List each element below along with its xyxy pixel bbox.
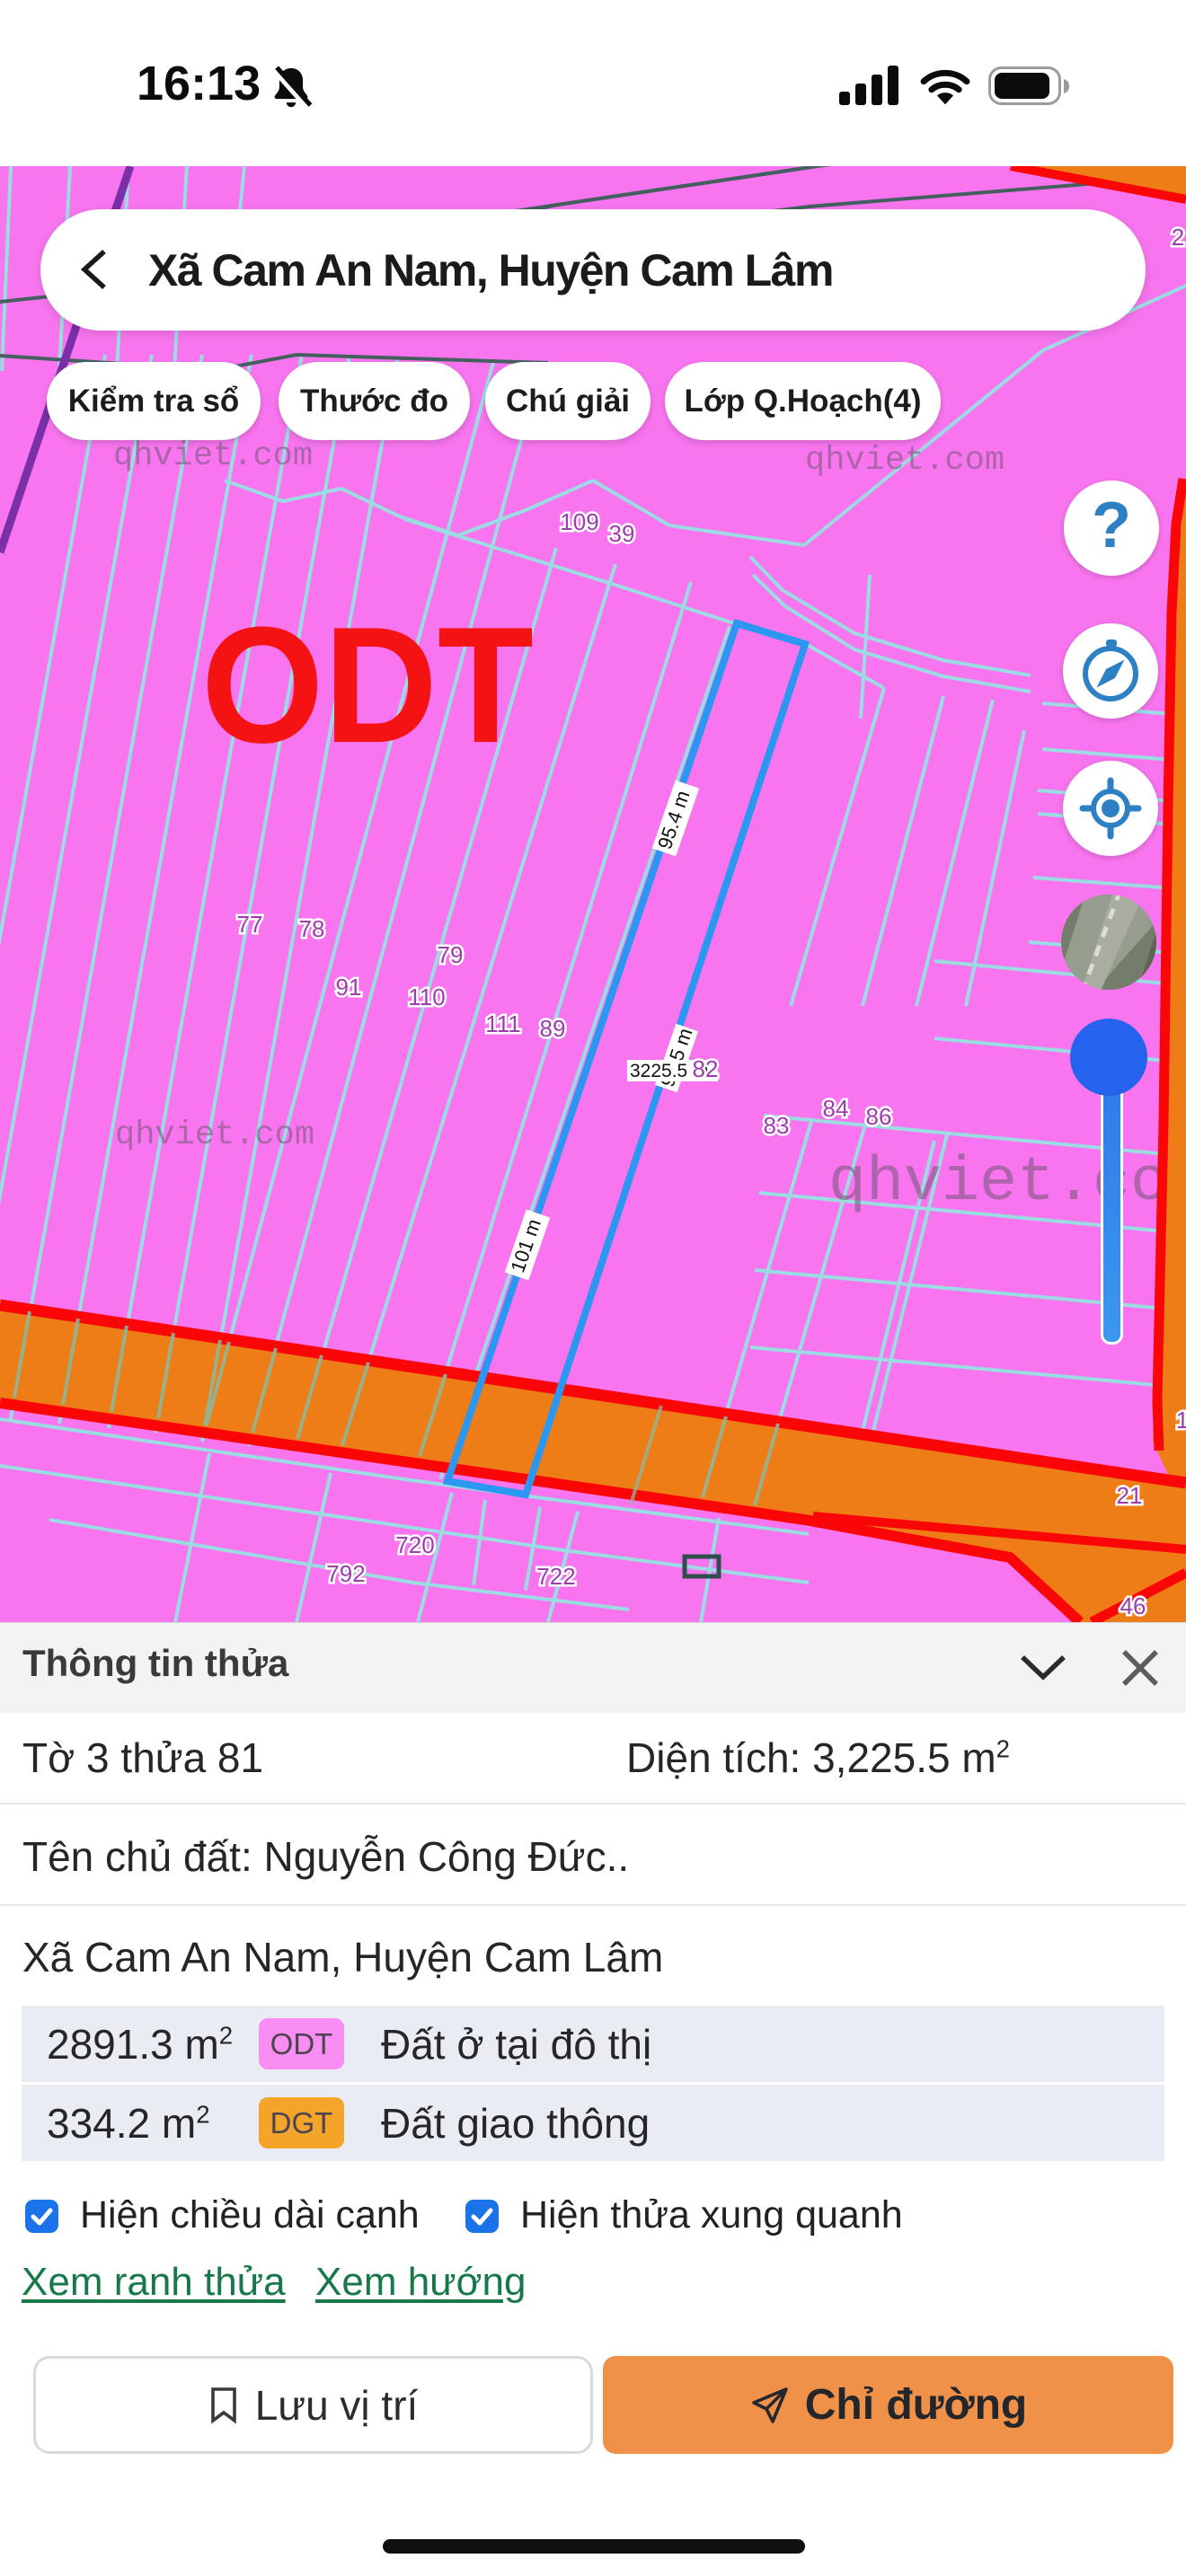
svg-text:21: 21 [1117, 1482, 1143, 1509]
svg-text:89: 89 [540, 1015, 566, 1042]
svg-text:111: 111 [485, 1010, 521, 1037]
svg-text:82: 82 [693, 1055, 719, 1082]
svg-text:78: 78 [299, 915, 325, 942]
svg-text:109: 109 [560, 508, 598, 535]
svg-text:qhviet.com: qhviet.com [113, 437, 313, 475]
svg-text:91: 91 [336, 974, 362, 1001]
svg-text:39: 39 [609, 520, 635, 547]
svg-text:qhviet.com: qhviet.com [115, 1116, 314, 1154]
svg-text:1: 1 [1176, 1407, 1186, 1434]
svg-text:83: 83 [764, 1112, 790, 1139]
svg-text:86: 86 [866, 1103, 892, 1130]
svg-text:84: 84 [823, 1095, 849, 1122]
svg-text:79: 79 [438, 941, 464, 968]
svg-text:77: 77 [237, 911, 263, 938]
svg-text:722: 722 [536, 1563, 575, 1590]
svg-text:ODT: ODT [201, 592, 534, 777]
svg-text:792: 792 [326, 1560, 365, 1587]
svg-text:2: 2 [1172, 224, 1184, 251]
svg-text:qhviet.com: qhviet.com [805, 442, 1005, 480]
svg-text:110: 110 [408, 984, 445, 1010]
svg-text:46: 46 [1120, 1592, 1146, 1619]
svg-text:720: 720 [395, 1531, 434, 1558]
svg-text:qhviet.com: qhviet.com [828, 1148, 1186, 1219]
